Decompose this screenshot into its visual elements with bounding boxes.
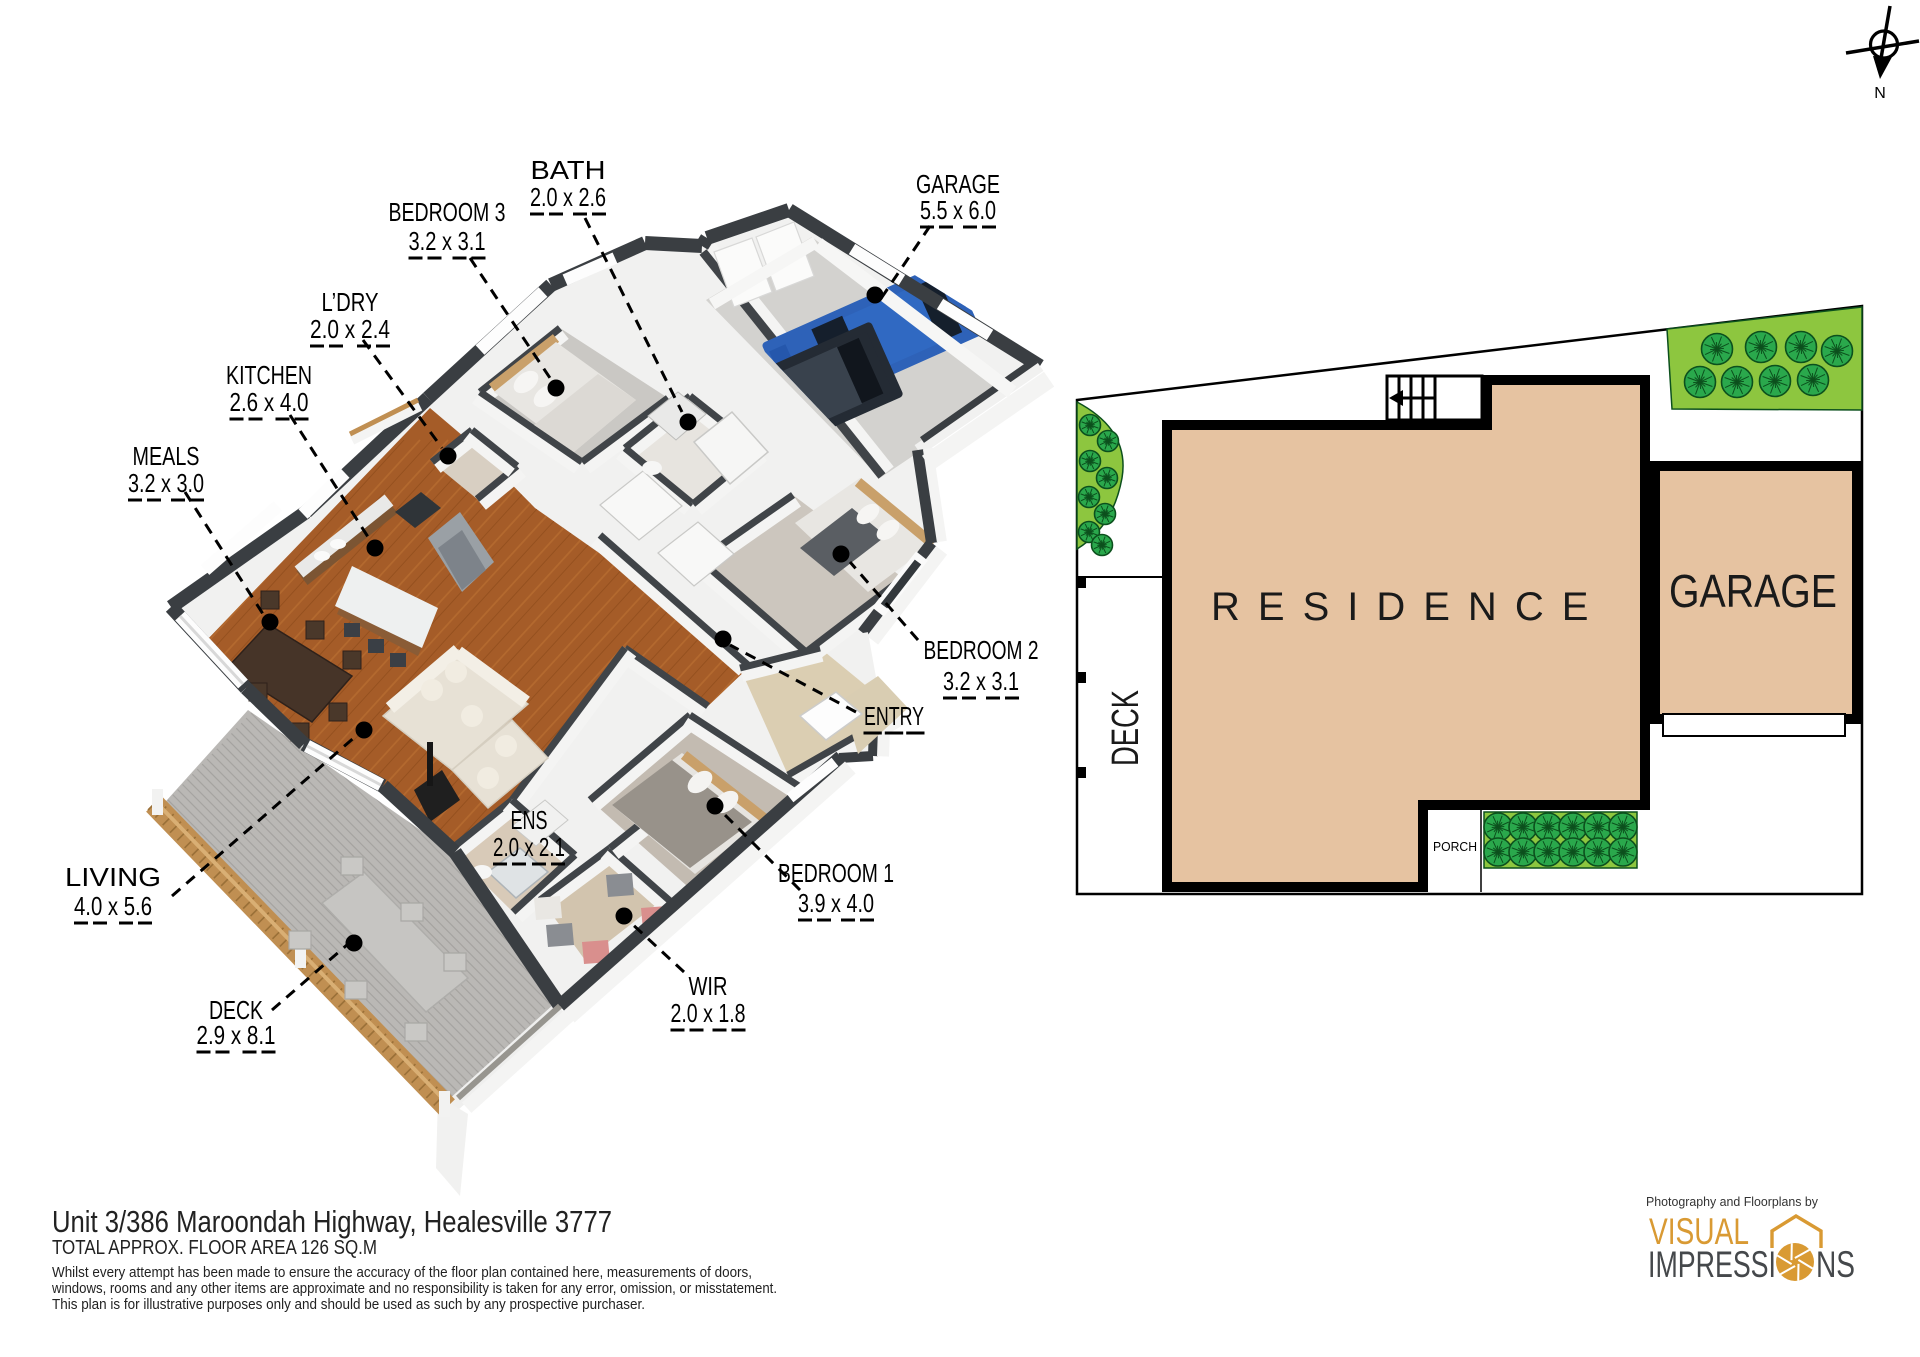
svg-text:2.9 x 8.1: 2.9 x 8.1 <box>197 1020 276 1050</box>
svg-text:Whilst every attempt has been: Whilst every attempt has been made to en… <box>52 1264 752 1281</box>
svg-text:3.2 x 3.1: 3.2 x 3.1 <box>409 226 486 256</box>
svg-text:BEDROOM 1: BEDROOM 1 <box>778 858 894 888</box>
svg-text:windows, rooms and any other i: windows, rooms and any other items are a… <box>51 1280 777 1297</box>
svg-text:IMPRESSI: IMPRESSI <box>1648 1244 1776 1285</box>
svg-text:Photography and Floorplans by: Photography and Floorplans by <box>1646 1195 1819 1209</box>
svg-text:ENS: ENS <box>511 805 548 835</box>
svg-text:ENTRY: ENTRY <box>864 701 924 731</box>
svg-text:DECK: DECK <box>1105 690 1147 766</box>
svg-text:5.5 x 6.0: 5.5 x 6.0 <box>920 195 996 225</box>
svg-text:This plan is for illustrative: This plan is for illustrative purposes o… <box>52 1296 645 1313</box>
svg-text:TOTAL APPROX. FLOOR AREA 126 S: TOTAL APPROX. FLOOR AREA 126 SQ.M <box>52 1237 377 1259</box>
svg-text:3.9 x 4.0: 3.9 x 4.0 <box>798 888 874 918</box>
svg-text:3.2 x 3.0: 3.2 x 3.0 <box>128 468 204 498</box>
svg-text:LIVING: LIVING <box>65 862 161 892</box>
svg-text:4.0 x 5.6: 4.0 x 5.6 <box>74 891 152 921</box>
svg-text:Unit 3/386 Maroondah Highway,: Unit 3/386 Maroondah Highway, Healesvill… <box>52 1204 612 1239</box>
svg-text:KITCHEN: KITCHEN <box>226 360 312 390</box>
svg-text:2.6 x 4.0: 2.6 x 4.0 <box>230 387 309 417</box>
svg-text:2.0 x 1.8: 2.0 x 1.8 <box>671 998 746 1028</box>
svg-text:NS: NS <box>1816 1244 1855 1285</box>
svg-text:2.0 x 2.4: 2.0 x 2.4 <box>310 314 390 344</box>
svg-text:GARAGE: GARAGE <box>1669 565 1837 617</box>
svg-text:2.0 x 2.6: 2.0 x 2.6 <box>530 182 606 212</box>
svg-text:L’DRY: L’DRY <box>322 287 379 317</box>
svg-text:RESIDENCE: RESIDENCE <box>1211 585 1606 629</box>
svg-text:BATH: BATH <box>531 155 606 185</box>
svg-text:2.0 x 2.1: 2.0 x 2.1 <box>493 832 565 862</box>
svg-text:3.2 x 3.1: 3.2 x 3.1 <box>943 666 1019 696</box>
svg-text:N: N <box>1874 85 1886 102</box>
svg-text:PORCH: PORCH <box>1433 839 1477 854</box>
svg-text:BEDROOM 3: BEDROOM 3 <box>389 197 506 227</box>
svg-text:MEALS: MEALS <box>133 441 200 471</box>
svg-text:BEDROOM 2: BEDROOM 2 <box>924 635 1039 665</box>
svg-text:WIR: WIR <box>689 971 728 1001</box>
